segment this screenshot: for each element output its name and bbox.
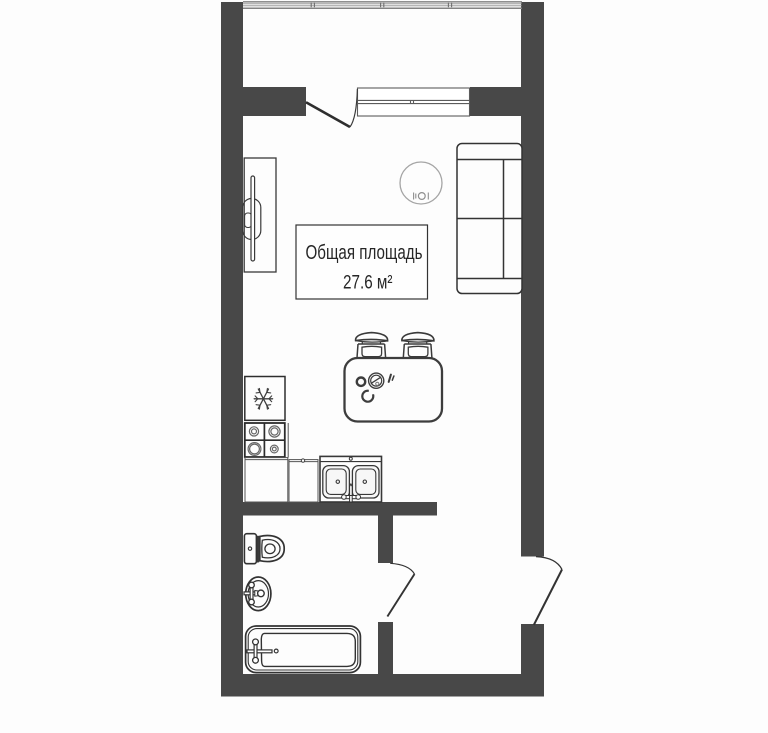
svg-text:Общая площадь: Общая площадь <box>306 242 423 264</box>
svg-text:27.6 м²: 27.6 м² <box>343 273 393 294</box>
